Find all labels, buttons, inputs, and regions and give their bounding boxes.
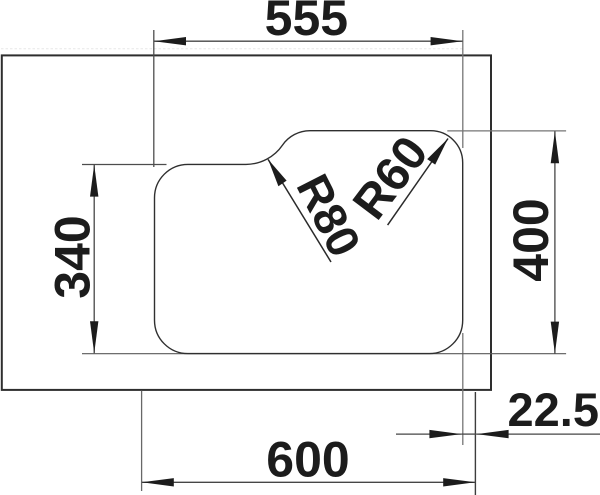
svg-text:600: 600 — [266, 432, 349, 488]
svg-text:340: 340 — [45, 215, 101, 298]
svg-text:400: 400 — [503, 198, 559, 281]
svg-text:22.5: 22.5 — [508, 383, 599, 436]
svg-text:555: 555 — [265, 0, 348, 46]
